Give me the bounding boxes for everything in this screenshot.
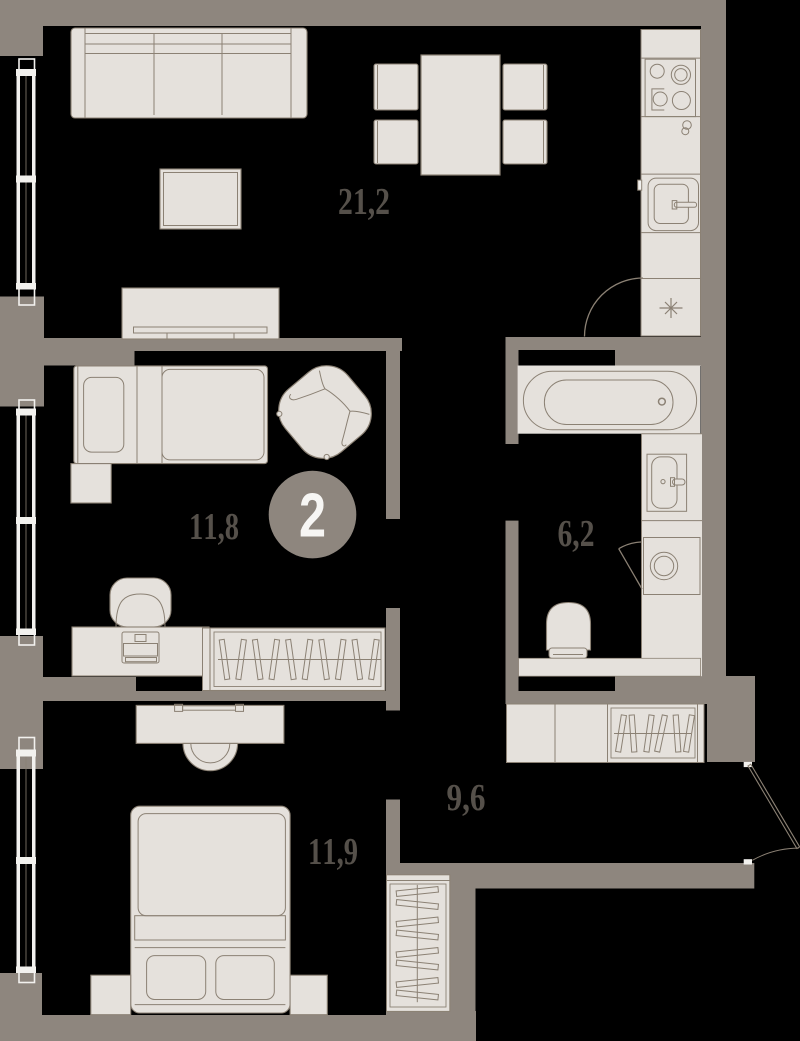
- svg-text:6,2: 6,2: [558, 513, 595, 555]
- svg-text:21,2: 21,2: [338, 181, 390, 223]
- svg-text:11,9: 11,9: [308, 831, 358, 873]
- svg-text:2: 2: [299, 482, 326, 551]
- svg-text:9,6: 9,6: [447, 777, 486, 819]
- svg-text:11,8: 11,8: [189, 506, 239, 548]
